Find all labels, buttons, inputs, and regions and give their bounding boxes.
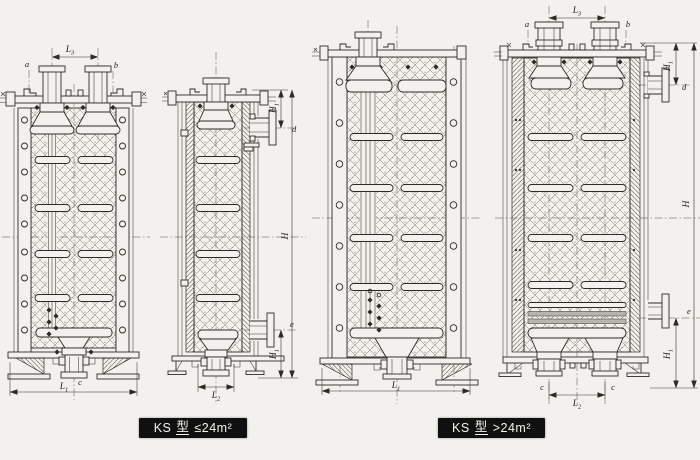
svg-text:e: e	[687, 306, 691, 316]
caption-ks-small: KS型≤24m²	[139, 418, 247, 438]
svg-text:c: c	[540, 382, 544, 392]
caption-type-char: 型	[176, 421, 189, 435]
svg-text:e: e	[290, 319, 294, 329]
caption-condition: ≤24m²	[194, 421, 232, 435]
caption-model: KS	[154, 421, 172, 435]
caption-condition: >24m²	[493, 421, 531, 435]
nozzle-label-e: e	[687, 306, 691, 316]
vessel-body	[178, 102, 258, 356]
svg-text:c: c	[611, 382, 615, 392]
vessel-body	[14, 108, 133, 356]
svg-text:c: c	[78, 377, 82, 387]
caption-type-char: 型	[475, 421, 488, 435]
plate-stack	[528, 303, 626, 339]
drawing-large-front-view: L1	[312, 20, 482, 404]
svg-text:H: H	[281, 231, 291, 240]
svg-text:a: a	[525, 19, 529, 29]
drawing-small-front-view: L3 a b c L1	[0, 45, 150, 400]
nozzle-label-e: e	[290, 319, 294, 329]
vessel-body	[328, 57, 466, 360]
technical-drawing-canvas: L3 a b c L1	[0, 0, 700, 460]
svg-text:b: b	[626, 19, 630, 29]
caption-model: KS	[452, 421, 470, 435]
caption-ks-large: KS型>24m²	[438, 418, 545, 438]
scanned-drawing-page: L3 a b c L1	[0, 0, 700, 460]
svg-text:a: a	[25, 59, 29, 69]
svg-text:H: H	[682, 199, 692, 208]
svg-text:b: b	[114, 60, 118, 70]
nozzle-label-c: c	[78, 377, 82, 387]
